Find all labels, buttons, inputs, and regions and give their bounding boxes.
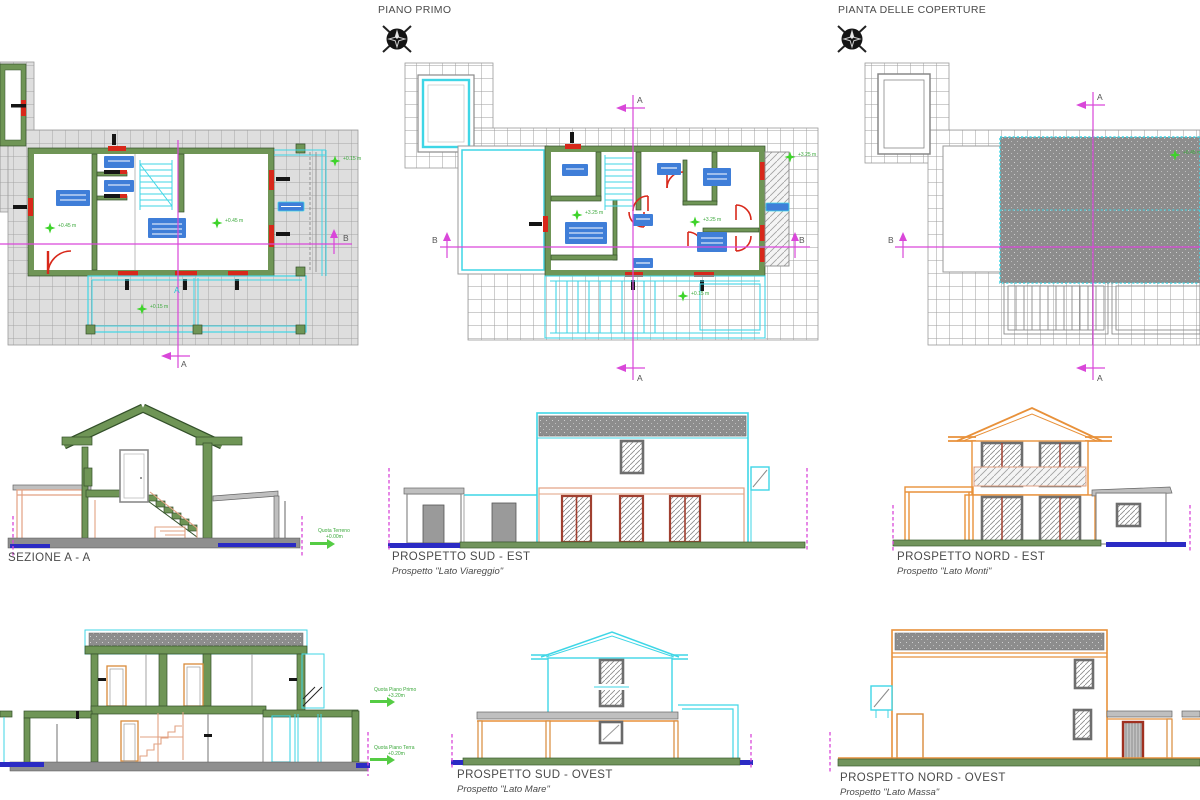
svg-text:+0.45 m: +0.45 m — [225, 218, 243, 224]
window — [1075, 660, 1093, 688]
plan-piano-primo: +3.25 m +3.25 m +3.25 m +0.15 m A A B B — [405, 63, 818, 383]
left-balcony — [458, 146, 548, 274]
window — [1117, 504, 1140, 526]
annex-door — [423, 505, 444, 543]
window — [1074, 710, 1091, 739]
cyan-window — [871, 686, 892, 718]
sezione-bb: Quota Piano Primo +3.20m Quota Piano Ter… — [0, 630, 416, 776]
annex-room — [0, 64, 26, 146]
svg-text:+6.45 m: +6.45 m — [1183, 150, 1200, 156]
cyan-door — [272, 716, 290, 762]
annex-door — [492, 503, 516, 542]
roof-band — [539, 416, 746, 436]
compass-icon — [838, 26, 866, 52]
french-doors — [562, 496, 700, 542]
subtitle-sud-ovest: Prospetto "Lato Mare" — [457, 784, 550, 795]
prospetto-sud-ovest: PROSPETTO SUD - OVEST Prospetto "Lato Ma… — [451, 632, 753, 795]
title-piano-primo: PIANO PRIMO — [378, 4, 451, 16]
svg-text:A: A — [174, 285, 180, 295]
left-pergola — [905, 487, 973, 543]
main-facade — [537, 413, 769, 543]
svg-text:+3.25 m: +3.25 m — [585, 210, 603, 216]
door — [121, 721, 138, 761]
title-sud-ovest: PROSPETTO SUD - OVEST — [457, 769, 613, 781]
svg-text:B: B — [888, 235, 894, 245]
svg-text:A: A — [181, 359, 187, 369]
svg-text:+0.15 m: +0.15 m — [691, 291, 709, 297]
door-section — [120, 450, 148, 502]
quota-piano-terra: Quota Piano Terra +0.20m — [370, 745, 415, 765]
plan-coperture: +6.45 m A A B — [865, 63, 1200, 383]
svg-text:A: A — [637, 373, 643, 383]
plan-piano-terra: +0.45 m +0.45 m +0.15 m +0.15 m B A A — [0, 62, 361, 369]
title-sezione-aa: SEZIONE A - A — [8, 552, 91, 564]
compass-icon — [383, 26, 411, 52]
door-outline — [897, 714, 923, 762]
svg-text:+0.20m: +0.20m — [388, 751, 405, 757]
title-sud-est: PROSPETTO SUD - EST — [392, 551, 530, 563]
skylight-box — [418, 75, 474, 152]
sezione-aa: Quota Terreno +0.00m SEZIONE A - A — [8, 408, 350, 564]
roof-band — [895, 633, 1104, 650]
subtitle-nord-ovest: Prospetto "Lato Massa" — [840, 787, 940, 798]
small-window — [600, 722, 622, 743]
roof-gable — [62, 408, 242, 445]
svg-text:A: A — [1097, 373, 1103, 383]
title-coperture: PIANTA DELLE COPERTURE — [838, 4, 986, 16]
far-pergola — [1182, 711, 1200, 719]
door — [1123, 722, 1143, 760]
title-nord-ovest: PROSPETTO NORD - OVEST — [840, 772, 1006, 784]
upper-floor — [91, 654, 324, 714]
quota-piano-primo: Quota Piano Primo +3.20m — [370, 687, 416, 707]
subtitle-nord-est: Prospetto "Lato Monti" — [897, 566, 992, 577]
svg-text:+3.25 m: +3.25 m — [798, 152, 816, 158]
svg-text:A: A — [1097, 92, 1103, 102]
balcony — [974, 467, 1086, 486]
window — [621, 441, 643, 473]
gable-roof — [531, 632, 688, 659]
svg-text:+3.25 m: +3.25 m — [703, 217, 721, 223]
right-annex — [678, 705, 738, 762]
drawing-sheet: PIANO PRIMO PIANTA DELLE COPERTURE — [0, 0, 1200, 800]
svg-text:+3.20m: +3.20m — [388, 693, 405, 699]
prospetto-nord-ovest: PROSPETTO NORD - OVEST Prospetto "Lato M… — [830, 630, 1200, 798]
right-shed — [1092, 487, 1172, 544]
svg-text:+0.15 m: +0.15 m — [343, 156, 361, 162]
pergola — [477, 712, 678, 760]
quota-terreno: Quota Terreno +0.00m — [310, 528, 350, 549]
svg-text:B: B — [799, 235, 805, 245]
right-annex — [1107, 711, 1172, 762]
roof — [1000, 137, 1200, 283]
lower-floor — [0, 711, 359, 763]
svg-text:+0.15 m: +0.15 m — [150, 304, 168, 310]
building-walls — [28, 148, 274, 276]
prospetto-sud-est: PROSPETTO SUD - EST Prospetto "Lato Viar… — [388, 413, 807, 577]
right-shed — [213, 491, 285, 540]
svg-text:B: B — [343, 233, 349, 243]
prospetto-nord-est: PROSPETTO NORD - EST Prospetto "Lato Mon… — [893, 408, 1190, 577]
svg-text:A: A — [637, 95, 643, 105]
right-balcony — [765, 152, 789, 266]
pergola-beyond — [17, 490, 87, 539]
title-nord-est: PROSPETTO NORD - EST — [897, 551, 1045, 563]
left-balcony — [943, 146, 1001, 272]
subtitle-sud-est: Prospetto "Lato Viareggio" — [392, 566, 504, 577]
gable-roof — [948, 408, 1112, 441]
svg-text:+0.45 m: +0.45 m — [58, 223, 76, 229]
cad-canvas: PIANO PRIMO PIANTA DELLE COPERTURE — [0, 0, 1200, 800]
svg-text:B: B — [432, 235, 438, 245]
svg-text:+0.00m: +0.00m — [326, 534, 343, 540]
tall-window — [600, 660, 623, 706]
stair-beyond — [140, 712, 183, 762]
skylight-box — [878, 74, 930, 154]
